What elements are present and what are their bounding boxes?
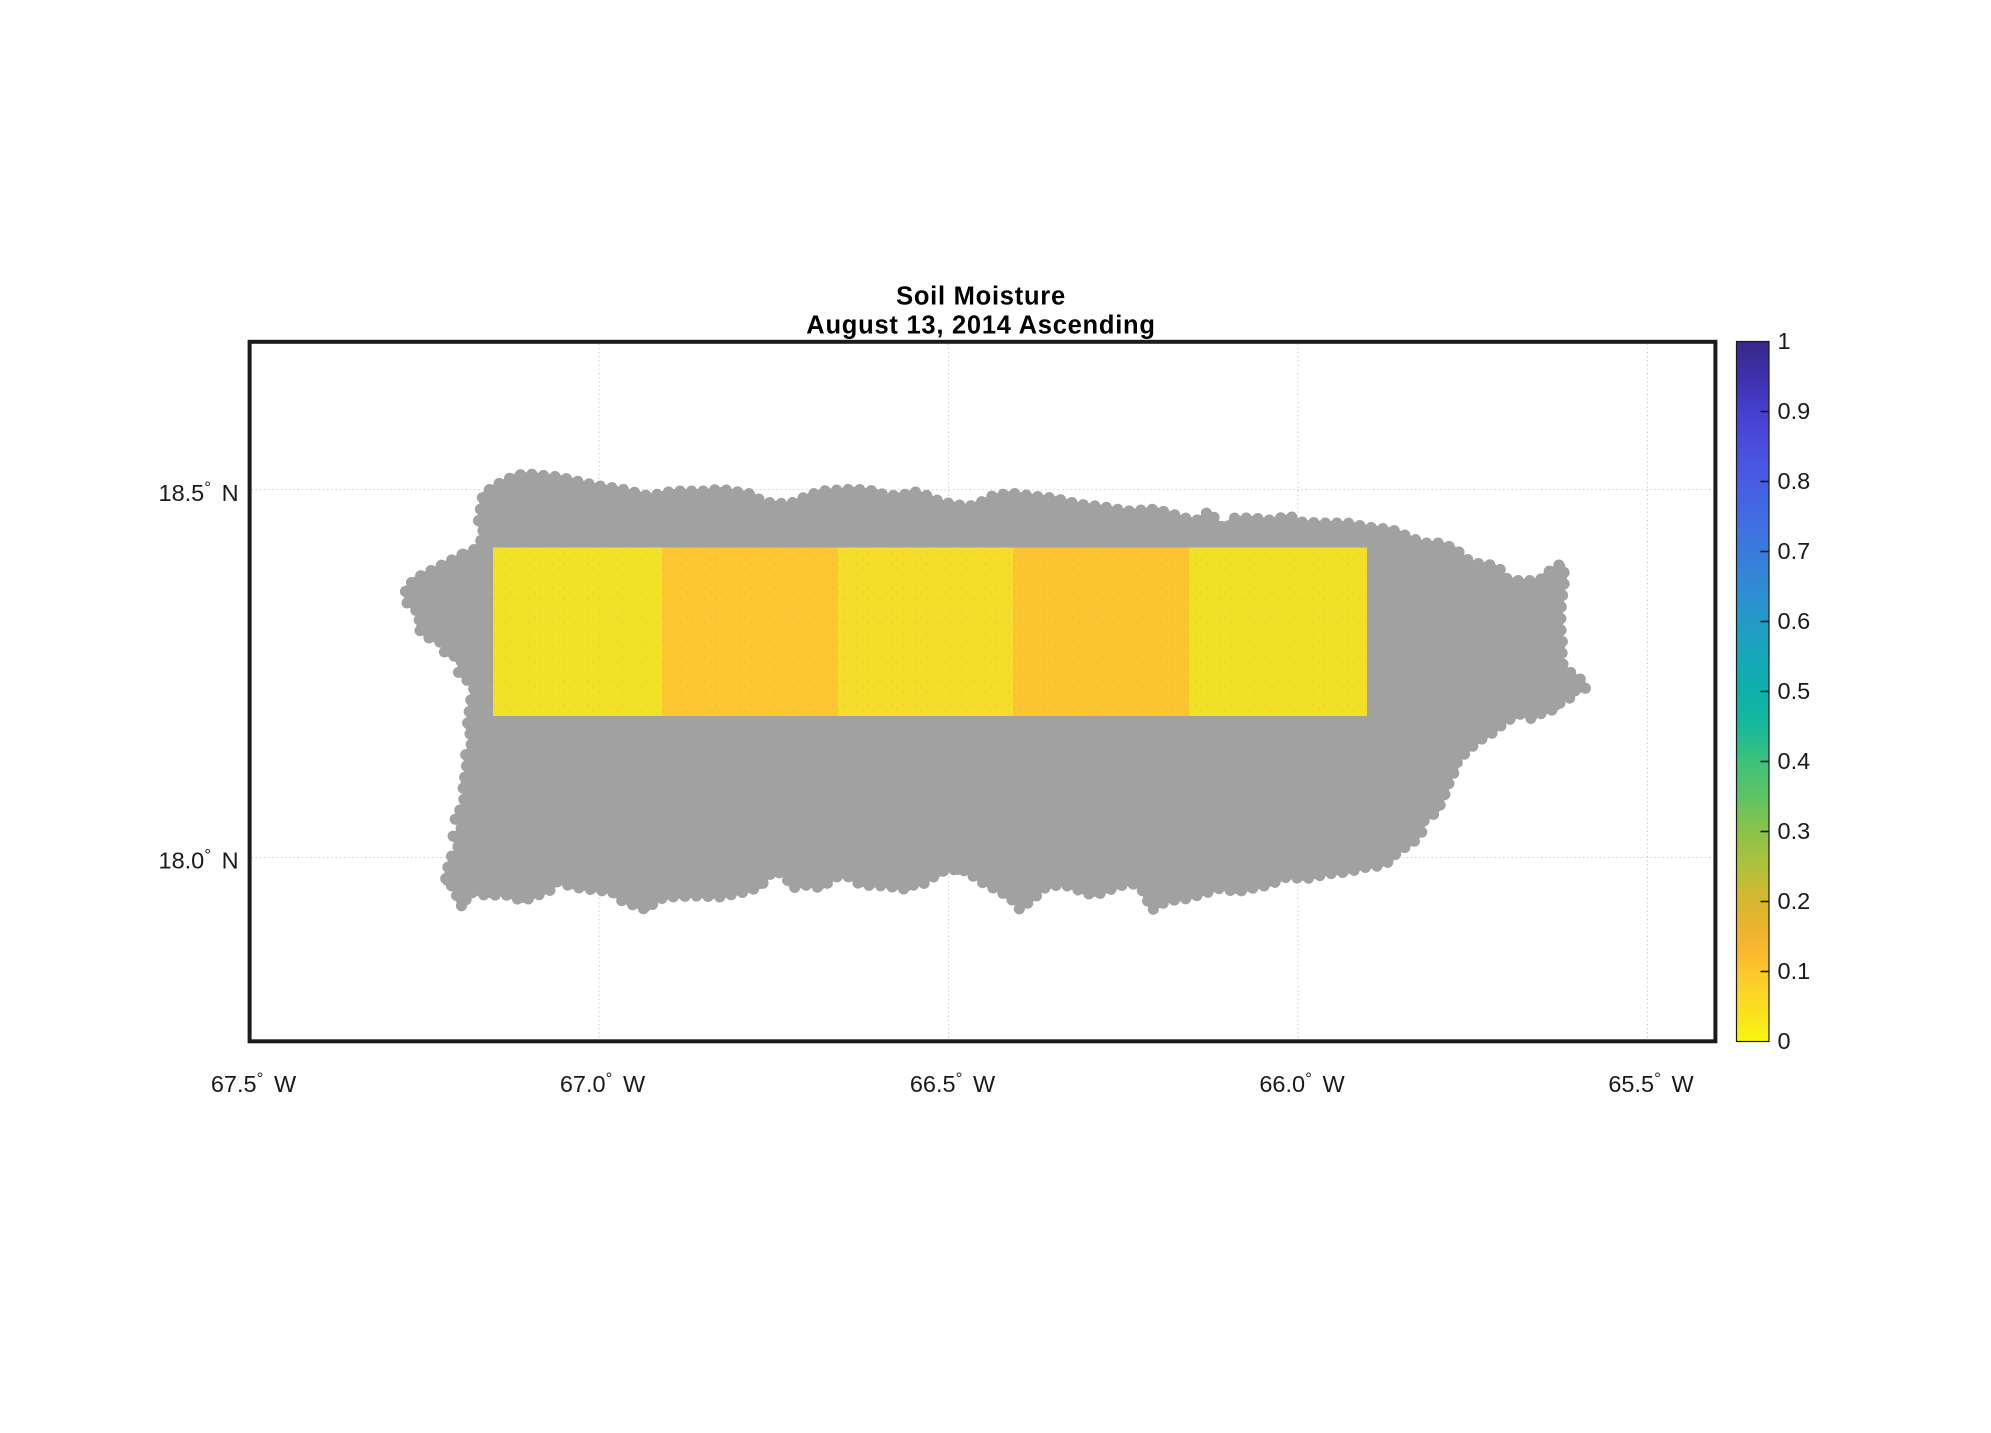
svg-text:18.0° N: 18.0° N (159, 846, 239, 874)
svg-text:18.5° N: 18.5° N (159, 478, 239, 506)
svg-text:0.3: 0.3 (1778, 818, 1811, 844)
svg-text:0.2: 0.2 (1778, 888, 1811, 914)
svg-text:0.8: 0.8 (1778, 468, 1811, 494)
svg-text:67.0° W: 67.0° W (560, 1069, 646, 1097)
svg-text:0.5: 0.5 (1778, 678, 1811, 704)
svg-text:65.5° W: 65.5° W (1608, 1069, 1694, 1097)
svg-text:0.4: 0.4 (1778, 748, 1811, 774)
svg-text:0.6: 0.6 (1778, 608, 1811, 634)
svg-text:0.7: 0.7 (1778, 538, 1811, 564)
svg-text:1: 1 (1778, 328, 1791, 354)
svg-text:August 13, 2014 Ascending: August 13, 2014 Ascending (806, 312, 1155, 340)
svg-text:67.5° W: 67.5° W (211, 1069, 297, 1097)
svg-text:66.5° W: 66.5° W (910, 1069, 996, 1097)
svg-text:0.1: 0.1 (1778, 958, 1811, 984)
svg-text:0.9: 0.9 (1778, 398, 1811, 424)
svg-text:0: 0 (1778, 1028, 1791, 1054)
svg-text:66.0° W: 66.0° W (1259, 1069, 1345, 1097)
svg-text:Soil Moisture: Soil Moisture (896, 283, 1066, 311)
